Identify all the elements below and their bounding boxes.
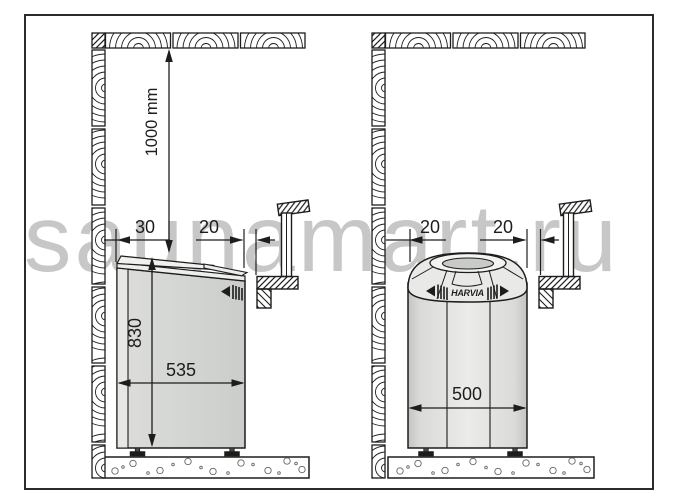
safety-rail-section [257, 200, 310, 308]
right-wall [372, 50, 385, 478]
clearance-diagram-svg: 1000 mm 830 535 30 [0, 0, 685, 502]
heater-width-label: 500 [452, 384, 482, 404]
ceiling-clearance-label: 1000 mm [143, 88, 161, 157]
left-diagram: 1000 mm 830 535 30 [92, 33, 310, 478]
wall-gap-label: 20 [420, 217, 440, 237]
heater-foot [225, 448, 239, 456]
left-wall [92, 50, 105, 478]
front-gap-label: 20 [493, 217, 513, 237]
brand-logo: HARVIA [451, 288, 484, 298]
right-diagram: HARVIA 20 20 [372, 33, 594, 478]
heater-foot [131, 448, 145, 456]
stone-compartment-opening [443, 258, 494, 269]
installation-diagram: saunamart.ru [0, 0, 685, 502]
dimension-wall-gap: 30 [104, 217, 170, 262]
safety-rail-section [539, 200, 592, 308]
right-floor-slab [388, 457, 594, 478]
heater-width-label: 535 [166, 360, 196, 380]
left-heater [117, 256, 247, 456]
heater-height-label: 830 [125, 318, 145, 348]
heater-foot [419, 448, 433, 456]
right-ceiling [372, 33, 585, 48]
left-ceiling [92, 33, 305, 48]
right-heater: HARVIA [408, 253, 527, 456]
wall-gap-label: 30 [135, 217, 155, 237]
left-floor-slab [103, 457, 309, 478]
heater-foot [508, 448, 522, 456]
front-gap-label: 20 [199, 217, 219, 237]
